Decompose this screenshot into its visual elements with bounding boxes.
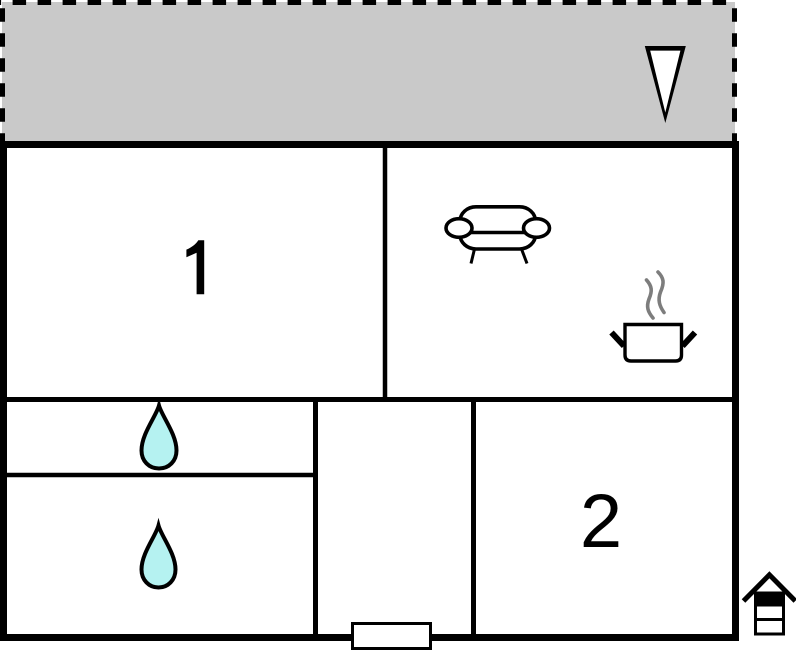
svg-text:2: 2 <box>580 479 622 564</box>
